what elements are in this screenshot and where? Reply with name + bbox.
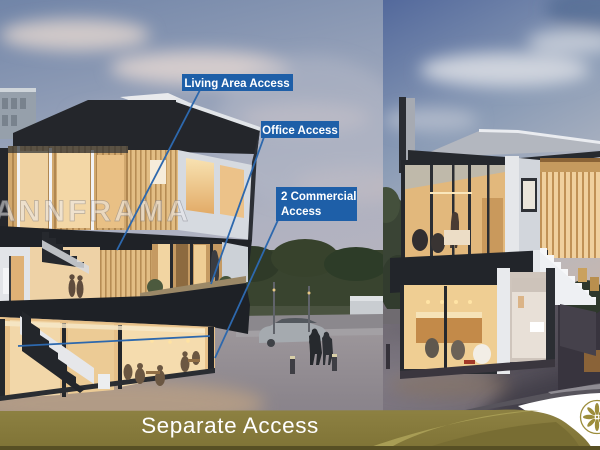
svg-text:Living Area Access: Living Area Access	[184, 78, 289, 90]
svg-text:Office Access: Office Access	[262, 125, 338, 137]
svg-text:Access: Access	[281, 206, 321, 218]
svg-text:Separate Access: Separate Access	[141, 413, 319, 438]
svg-text:2 Commercial: 2 Commercial	[281, 191, 356, 203]
svg-text:ANNFRAMA: ANNFRAMA	[0, 195, 191, 228]
